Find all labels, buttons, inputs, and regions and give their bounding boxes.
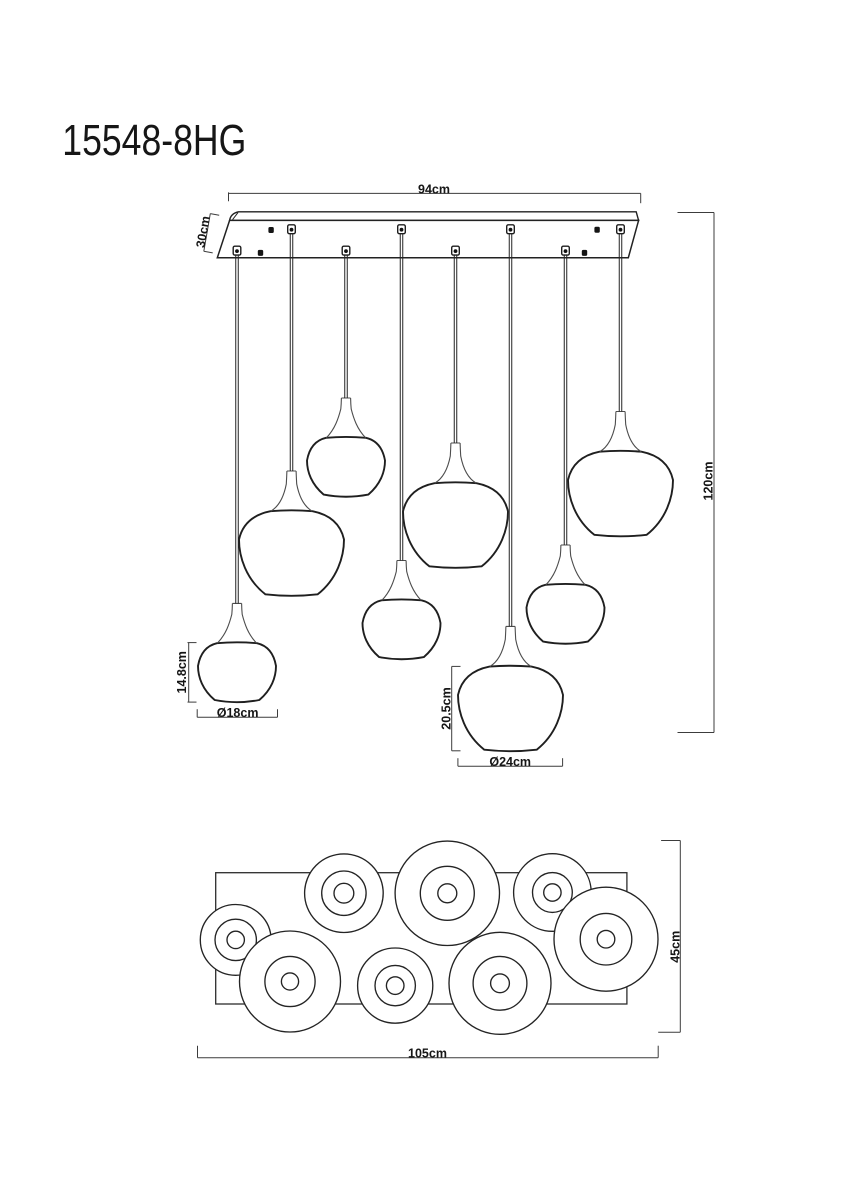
svg-text:45cm: 45cm [668, 931, 682, 963]
svg-text:Ø18cm: Ø18cm [217, 706, 259, 720]
svg-text:120cm: 120cm [702, 462, 716, 501]
svg-text:Ø24cm: Ø24cm [489, 755, 531, 769]
svg-text:94cm: 94cm [418, 183, 450, 197]
svg-text:15548-8HG: 15548-8HG [62, 116, 246, 165]
svg-text:20.5cm: 20.5cm [440, 687, 454, 729]
svg-text:14.8cm: 14.8cm [175, 651, 189, 693]
svg-text:105cm: 105cm [408, 1046, 447, 1060]
